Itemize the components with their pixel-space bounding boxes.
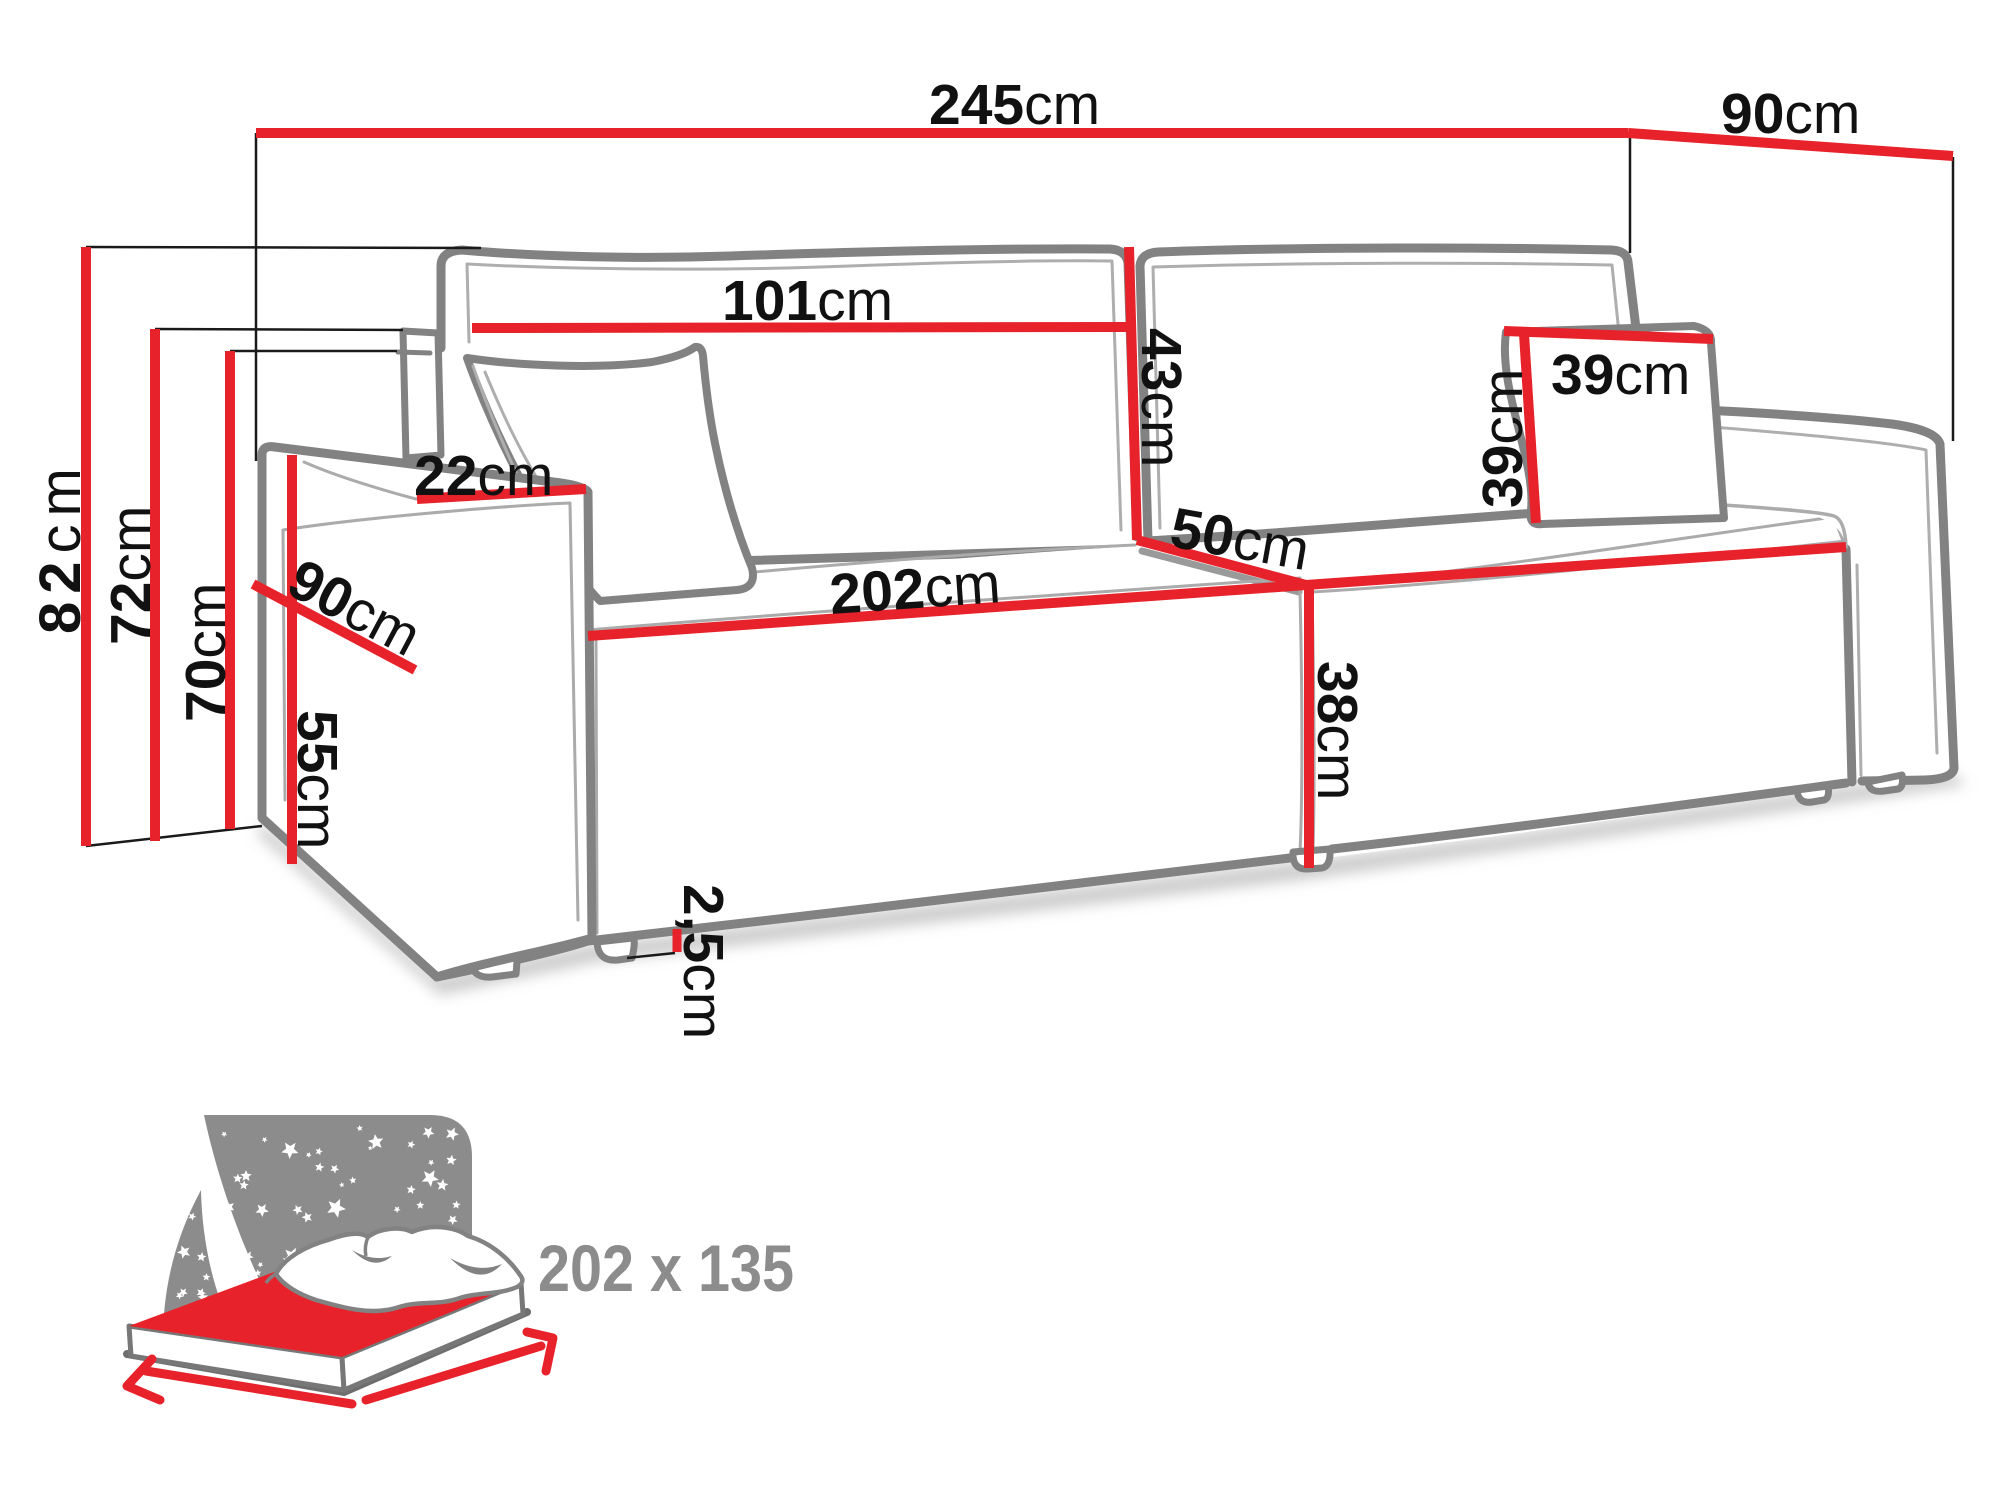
svg-text:202cm: 202cm — [827, 551, 1002, 627]
svg-text:70cm: 70cm — [174, 583, 238, 722]
svg-text:39cm: 39cm — [1551, 343, 1690, 407]
svg-text:82cm: 82cm — [28, 460, 93, 634]
svg-text:2,5cm: 2,5cm — [671, 884, 735, 1039]
svg-text:245cm: 245cm — [929, 73, 1100, 137]
svg-text:72cm: 72cm — [99, 506, 163, 645]
svg-text:38cm: 38cm — [1305, 661, 1369, 800]
svg-text:90cm: 90cm — [1721, 82, 1860, 146]
svg-text:101cm: 101cm — [722, 269, 893, 333]
svg-text:43cm: 43cm — [1129, 328, 1193, 467]
svg-text:202 x 135: 202 x 135 — [538, 1231, 794, 1305]
svg-text:22cm: 22cm — [414, 444, 553, 508]
svg-text:39cm: 39cm — [1471, 369, 1535, 508]
svg-text:55cm: 55cm — [285, 710, 349, 849]
